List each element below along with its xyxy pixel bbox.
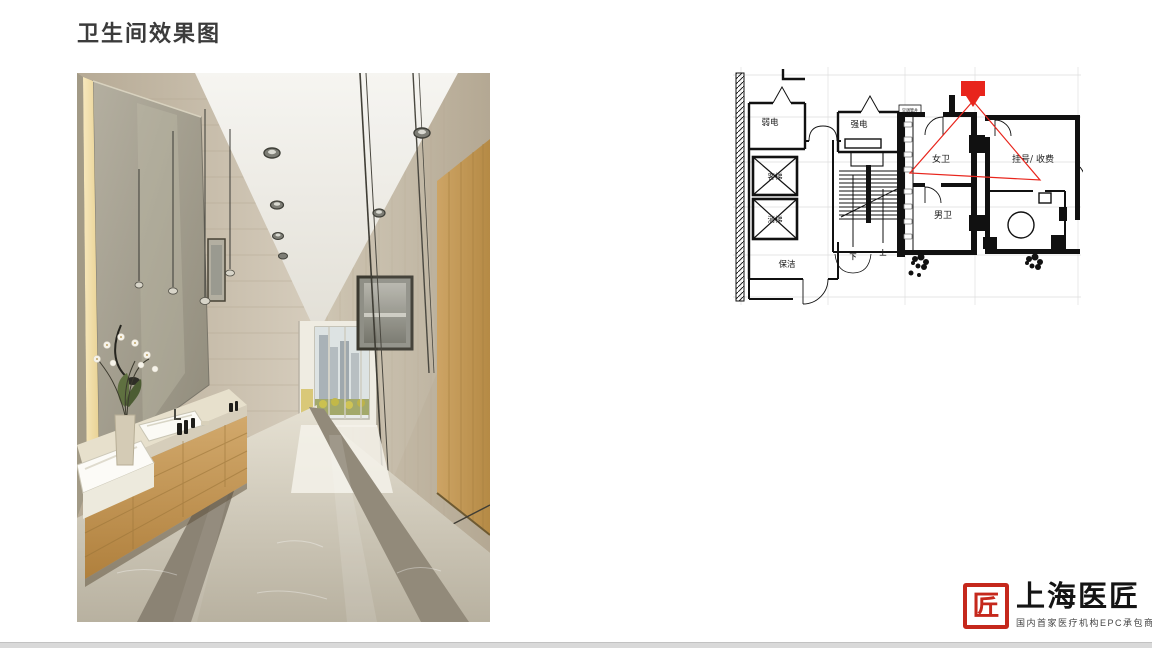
bottom-strip <box>0 642 1152 648</box>
room-label-female-toilet: 女卫 <box>932 153 950 165</box>
registration-block <box>983 115 1083 254</box>
logo-seal-icon: 匠 <box>963 583 1009 629</box>
left-wall-artwork <box>208 239 225 301</box>
logo-tagline: 国内首家医疗机构EPC承包商 <box>1016 616 1152 629</box>
floor-plan: 弱电 客梯 消梯 保洁 <box>733 67 1083 307</box>
strong-power-room <box>838 96 900 152</box>
room-label-cleaning: 保洁 <box>778 259 796 270</box>
floor-plan-diagram: 弱电 客梯 消梯 保洁 <box>733 67 1083 307</box>
slide-canvas: 卫生间效果图 <box>0 0 1152 648</box>
room-label-male-toilet: 男卫 <box>934 210 952 221</box>
ac-shaft-label: 空调管井 <box>902 107 918 113</box>
rendering-scene <box>77 73 490 622</box>
stairwell <box>833 112 905 273</box>
company-logo: 匠 上海医匠 国内首家医疗机构EPC承包商 <box>963 583 1152 629</box>
page-title: 卫生间效果图 <box>77 16 221 48</box>
bathroom-rendering-photo <box>77 73 490 622</box>
room-label-fire-elevator: 消梯 <box>768 214 783 224</box>
cleaning-room <box>749 242 838 304</box>
wood-panel <box>437 139 490 535</box>
plant-right <box>1025 254 1043 271</box>
exterior-hatched-wall <box>736 73 744 301</box>
corridor-double-door <box>805 126 841 141</box>
stair-up-label: 上 <box>880 248 887 257</box>
stair-down-label: 下 <box>850 252 857 261</box>
room-label-strong-power: 强电 <box>850 119 868 130</box>
logo-name: 上海医匠 <box>1016 583 1152 612</box>
room-label-weak-power: 弱电 <box>761 117 779 128</box>
camera-marker <box>961 81 985 107</box>
room-label-passenger-elevator: 客梯 <box>768 171 783 181</box>
plant-left <box>909 254 930 278</box>
